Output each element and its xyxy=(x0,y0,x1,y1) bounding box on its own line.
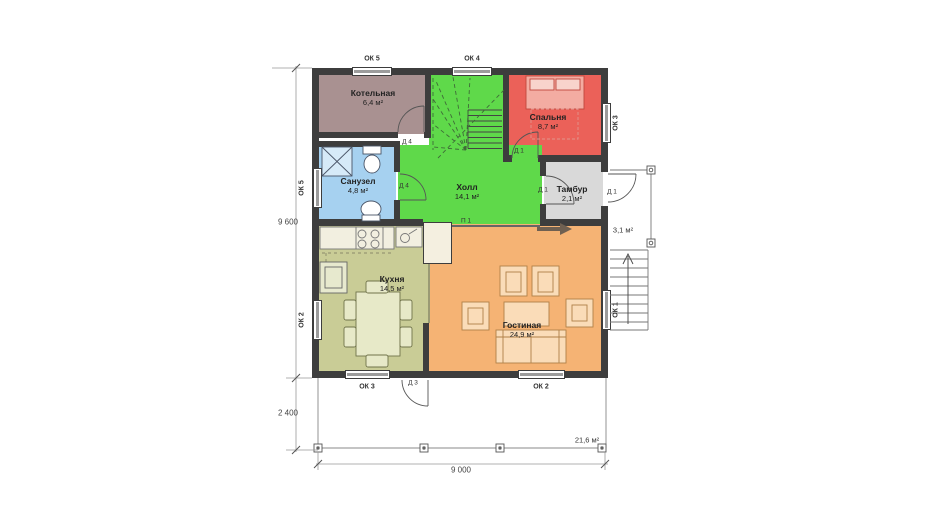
kitchen-furniture xyxy=(320,227,422,367)
bathroom-label: Санузел4,8 м² xyxy=(341,177,376,195)
door-label-terrace: Д 3 xyxy=(408,380,418,387)
boiler-room-label: Котельная6,4 м² xyxy=(351,89,396,107)
toilet-tank xyxy=(363,146,381,154)
dimension-house-width: 9 000 xyxy=(451,466,471,475)
terrace-area-label: 21,6 м² xyxy=(575,436,599,445)
side-chair xyxy=(566,299,593,327)
boiler-door xyxy=(398,106,424,132)
dimension-house-height: 9 600 xyxy=(278,218,298,227)
window-label-ok3-bottom: ОК 3 xyxy=(359,384,375,391)
bedroom-label: Спальня8,7 м² xyxy=(530,113,567,131)
window-label-ok2-bottom: ОК 2 xyxy=(533,384,549,391)
sink-base xyxy=(362,215,380,221)
toilet-bowl xyxy=(364,155,380,173)
dining-chair xyxy=(344,300,356,320)
window-label-ok1-right: ОК 1 xyxy=(613,302,620,318)
dining-chair xyxy=(400,327,412,347)
armchair xyxy=(532,266,559,296)
floor-plan: Котельная6,4 м² Спальня8,7 м² Санузел4,8… xyxy=(0,0,939,518)
living-room-label: Гостиная24,9 м² xyxy=(503,321,541,339)
dining-chair xyxy=(344,327,356,347)
window-label-ok2-left: ОК 2 xyxy=(299,312,306,328)
opening-label-hall-living: П 1 xyxy=(461,218,471,225)
side-chair xyxy=(462,302,489,330)
pillow xyxy=(530,79,554,90)
kitchen-label: Кухня14,5 м² xyxy=(380,275,405,293)
window-label-ok4-top: ОК 4 xyxy=(464,56,480,63)
terrace-outline xyxy=(314,378,606,452)
dimension-terrace-depth: 2 400 xyxy=(278,409,298,418)
dining-table xyxy=(356,292,400,356)
plan-linework xyxy=(0,0,939,518)
door-label-bedroom: Д 1 xyxy=(514,148,524,155)
staircase xyxy=(433,77,504,158)
vestibule-label: Тамбур2,1 м² xyxy=(557,185,588,203)
window-label-ok5-top: ОК 5 xyxy=(364,56,380,63)
dining-chair xyxy=(366,355,388,367)
door-label-bathroom: Д 4 xyxy=(399,183,409,190)
porch-area-label: 3,1 м² xyxy=(613,226,633,235)
dining-chair xyxy=(400,300,412,320)
door-label-vestibule-inner: Д 1 xyxy=(538,187,548,194)
door-label-boiler: Д 4 xyxy=(402,139,412,146)
armchair xyxy=(500,266,527,296)
window-label-ok3-right: ОК 3 xyxy=(613,115,620,131)
hall-label: Холл14,1 м² xyxy=(455,183,479,201)
window-label-ok5-left: ОК 5 xyxy=(299,180,306,196)
door-label-entry: Д 1 xyxy=(607,189,617,196)
living-room-furniture xyxy=(462,266,593,363)
entrance-steps xyxy=(610,250,648,330)
pillow xyxy=(556,79,580,90)
entry-arrow xyxy=(537,223,572,235)
steps-up-arrow xyxy=(623,254,633,324)
